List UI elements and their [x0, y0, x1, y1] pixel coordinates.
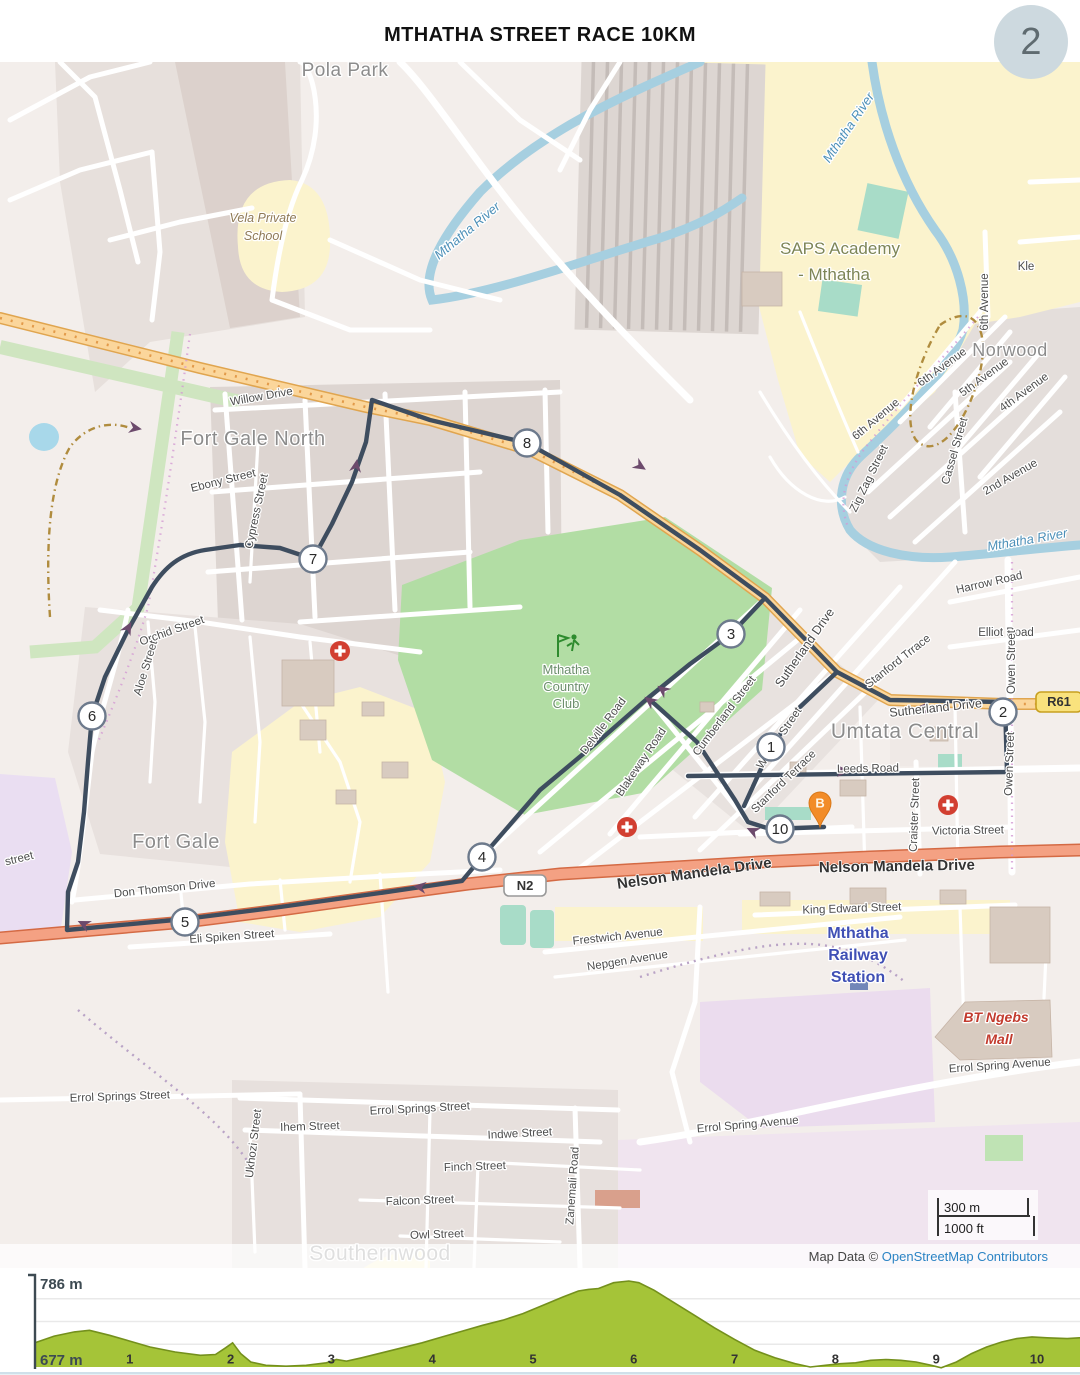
- svg-text:N2: N2: [517, 878, 534, 893]
- map-label: Club: [553, 696, 580, 711]
- svg-text:7: 7: [309, 551, 317, 568]
- road-shield: R61: [1036, 692, 1080, 712]
- hospital-icon: [330, 641, 350, 661]
- km-marker: 10: [767, 816, 794, 843]
- route-map: Pola ParkVela PrivateSchoolMthatha River…: [0, 62, 1080, 1268]
- svg-text:8: 8: [523, 435, 531, 452]
- map-label: Finch Street: [444, 1160, 507, 1174]
- map-label: Umtata Central: [831, 720, 979, 743]
- start-pin-label: B: [815, 796, 824, 811]
- svg-text:3: 3: [727, 626, 735, 643]
- svg-text:4: 4: [478, 849, 486, 866]
- map-label: Kle: [1018, 261, 1035, 273]
- km-marker: 3: [718, 621, 745, 648]
- km-marker: 6: [79, 703, 106, 730]
- km-tick-label: 7: [731, 1352, 738, 1367]
- map-label: Railway: [828, 947, 888, 964]
- map-canvas: Pola ParkVela PrivateSchoolMthatha River…: [0, 62, 1080, 1268]
- map-label: - Mthatha: [798, 265, 870, 284]
- map-label: Vela Private: [230, 211, 297, 225]
- km-tick-label: 5: [529, 1352, 536, 1367]
- map-attribution: Map Data © OpenStreetMap Contributors: [0, 1244, 1080, 1268]
- svg-text:Map Data © OpenStreetMap Contr: Map Data © OpenStreetMap Contributors: [809, 1249, 1049, 1264]
- km-marker: 7: [300, 546, 327, 573]
- map-label: Victoria Street: [932, 824, 1005, 837]
- osm-link[interactable]: OpenStreetMap Contributors: [882, 1249, 1049, 1264]
- km-tick-label: 6: [630, 1352, 637, 1367]
- map-label: Station: [831, 969, 885, 986]
- map-label: Fort Gale North: [180, 428, 325, 450]
- race-map-page: MTHATHA STREET RACE 10KM 2: [0, 0, 1080, 1375]
- map-label: School: [244, 229, 283, 243]
- svg-text:1: 1: [767, 739, 775, 756]
- map-label: SAPS Academy: [780, 239, 901, 258]
- header: MTHATHA STREET RACE 10KM: [0, 0, 1080, 62]
- attribution-text: Map Data ©: [809, 1249, 882, 1264]
- km-marker: 1: [758, 734, 785, 761]
- km-tick-label: 9: [933, 1352, 940, 1367]
- km-marker: 8: [514, 430, 541, 457]
- elevation-max-label: 786 m: [40, 1276, 83, 1293]
- svg-text:10: 10: [772, 821, 789, 838]
- svg-text:6: 6: [88, 708, 96, 725]
- km-tick-label: 1: [126, 1352, 133, 1367]
- scale-bar: 300 m 1000 ft: [928, 1190, 1038, 1240]
- scale-metric: 300 m: [944, 1200, 980, 1215]
- map-label: BT Ngebs: [963, 1009, 1029, 1025]
- road-shield: N2: [504, 875, 546, 896]
- map-label: Mthatha: [827, 925, 888, 942]
- hospital-icon: [938, 795, 958, 815]
- page-title: MTHATHA STREET RACE 10KM: [0, 0, 1080, 47]
- map-label: Ihem Street: [280, 1120, 341, 1134]
- page-number-badge: 2: [994, 5, 1068, 79]
- km-tick-label: 4: [429, 1352, 437, 1367]
- map-label: Owen Street: [1003, 731, 1017, 796]
- map-label: Pola Park: [302, 62, 389, 81]
- km-tick-label: 3: [328, 1352, 335, 1367]
- map-label: Mthatha: [543, 662, 591, 677]
- km-tick-label: 8: [832, 1352, 839, 1367]
- km-tick-label: 2: [227, 1352, 234, 1367]
- elevation-profile: 786 m677 m12345678910: [0, 1268, 1080, 1375]
- page-number: 2: [1020, 21, 1041, 64]
- hospital-icon: [617, 817, 637, 837]
- map-label: Norwood: [972, 340, 1048, 360]
- map-label: Nelson Mandela Drive: [819, 857, 975, 877]
- elevation-min-label: 677 m: [40, 1352, 83, 1369]
- map-label: Mall: [985, 1031, 1013, 1047]
- svg-text:2: 2: [999, 704, 1007, 721]
- map-label: Falcon Street: [386, 1194, 456, 1208]
- svg-text:5: 5: [181, 914, 189, 931]
- svg-text:R61: R61: [1047, 694, 1071, 709]
- map-label: Owen Street: [1006, 629, 1018, 694]
- km-marker: 4: [469, 844, 496, 871]
- km-tick-label: 10: [1030, 1352, 1044, 1367]
- map-label: Leeds Road: [837, 762, 899, 775]
- map-label: 6th Avenue: [979, 273, 991, 330]
- map-label: Fort Gale: [132, 831, 220, 853]
- scale-imperial: 1000 ft: [944, 1221, 984, 1236]
- map-label: Owl Street: [410, 1228, 465, 1242]
- km-marker: 2: [990, 699, 1017, 726]
- map-label: Country: [543, 679, 589, 694]
- km-marker: 5: [172, 909, 199, 936]
- pond: [29, 423, 59, 451]
